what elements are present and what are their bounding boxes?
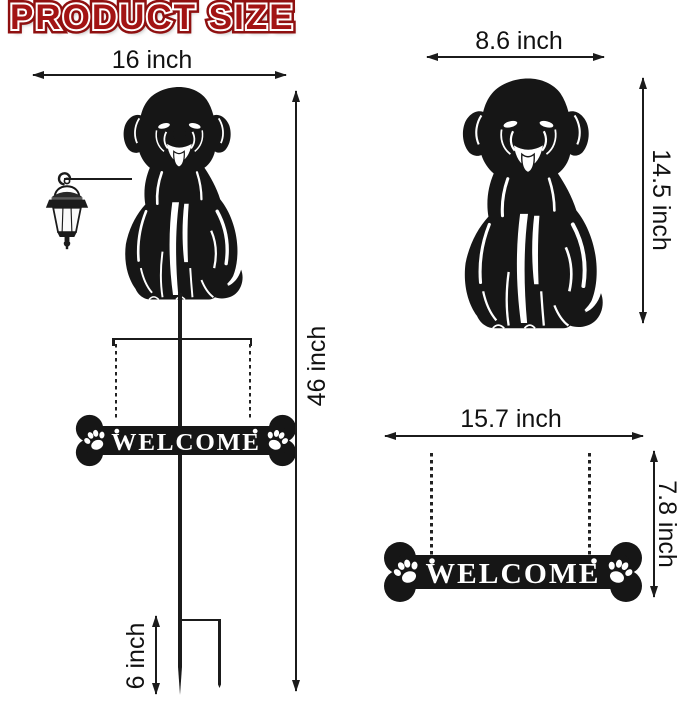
page-title: PRODUCT SIZE bbox=[10, 0, 295, 38]
dog-silhouette-illustration bbox=[440, 75, 616, 330]
sign-chain-right bbox=[249, 344, 252, 418]
full-stake-height-label: 46 inch bbox=[303, 306, 331, 426]
sign-chain-left bbox=[115, 344, 118, 418]
welcome-sign-illustration: WELCOME bbox=[383, 541, 643, 603]
full-stake-height-arrow bbox=[295, 91, 297, 691]
dog-width-label: 8.6 inch bbox=[449, 27, 589, 55]
sign-height-label: 7.8 inch bbox=[653, 464, 679, 584]
dog-width-arrow bbox=[427, 56, 604, 58]
product-size-page: { "title": "PRODUCT SIZE", "colors": { "… bbox=[0, 0, 679, 698]
stake-pole bbox=[178, 293, 182, 695]
welcome-sign-text: WELCOME bbox=[111, 429, 260, 456]
dog-stake-illustration bbox=[104, 84, 254, 301]
sign-crossbar bbox=[112, 338, 252, 340]
sign-width-arrow bbox=[385, 435, 643, 437]
full-stake-width-label: 16 inch bbox=[82, 46, 222, 74]
ground-depth-label: 6 inch bbox=[122, 596, 150, 716]
solar-lantern-illustration bbox=[41, 170, 93, 252]
dog-height-label: 14.5 inch bbox=[647, 135, 675, 265]
sign-width-label: 15.7 inch bbox=[441, 405, 581, 433]
page-title-text: PRODUCT SIZE bbox=[10, 0, 295, 38]
welcome-sign-text: WELCOME bbox=[426, 558, 601, 590]
welcome-sign-on-stake: WELCOME bbox=[75, 414, 297, 467]
dog-height-arrow bbox=[642, 78, 644, 323]
ground-fork-prong bbox=[218, 619, 221, 688]
ground-depth-arrow bbox=[155, 616, 157, 694]
ground-fork-bar bbox=[181, 619, 221, 621]
full-stake-width-arrow bbox=[33, 74, 286, 76]
